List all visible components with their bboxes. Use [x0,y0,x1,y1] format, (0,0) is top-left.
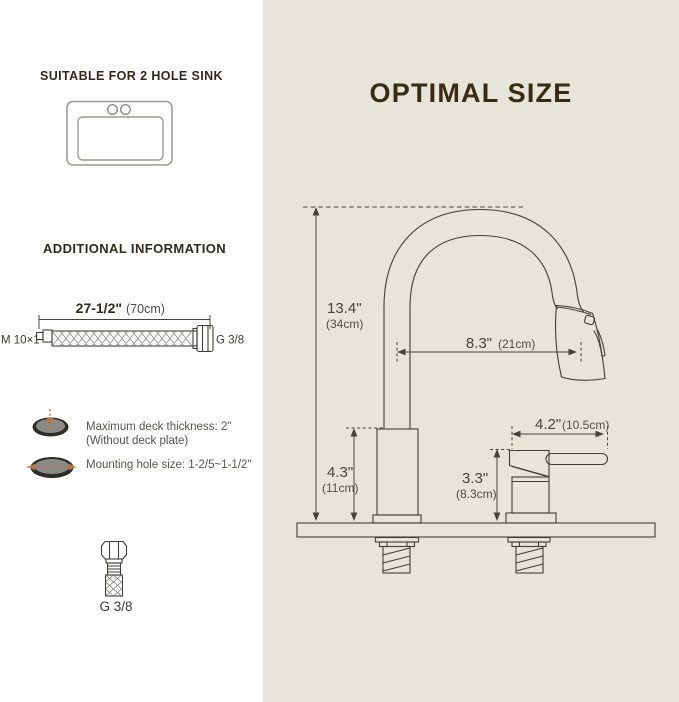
handle-base-flange [506,513,556,523]
handle-cap [510,451,550,477]
spray-head [556,306,605,381]
spout-height-in: 13.4" [327,300,362,317]
spray-trigger [594,330,605,357]
faucet-base-flange [373,515,421,523]
faucet-body [373,429,421,523]
dimension-arrows [313,207,604,521]
handle-reach-in: 4.2" [535,416,561,433]
handle-lever [546,454,608,465]
spout-height-cm: (34cm) [326,317,363,331]
handle-height-in: 3.3" [462,470,488,487]
dimension-lines [313,207,608,521]
body-height-cm: (11cm) [322,481,358,495]
countertop [297,523,655,537]
spray-button [584,315,595,325]
dimension-labels: 13.4" (34cm) 8.3" (21cm) 4.2" (10.5cm) 4… [322,300,609,501]
spout-reach-cm: (21cm) [498,337,535,351]
handle-shank [508,538,550,574]
product-dimension-infographic: SUITABLE FOR 2 HOLE SINK ADDITIONAL INFO… [0,0,679,702]
handle-reach-cm: (10.5cm) [562,418,609,432]
handle-body [512,477,549,513]
spout-reach-in: 8.3" [466,335,492,352]
body-height-in: 4.3" [327,464,353,481]
faucet-spout [384,210,584,430]
faucet-shank [376,538,419,574]
handle-height-cm: (8.3cm) [456,487,497,501]
faucet-dimension-diagram: 13.4" (34cm) 8.3" (21cm) 4.2" (10.5cm) 4… [0,0,679,702]
handle-unit [506,451,608,524]
